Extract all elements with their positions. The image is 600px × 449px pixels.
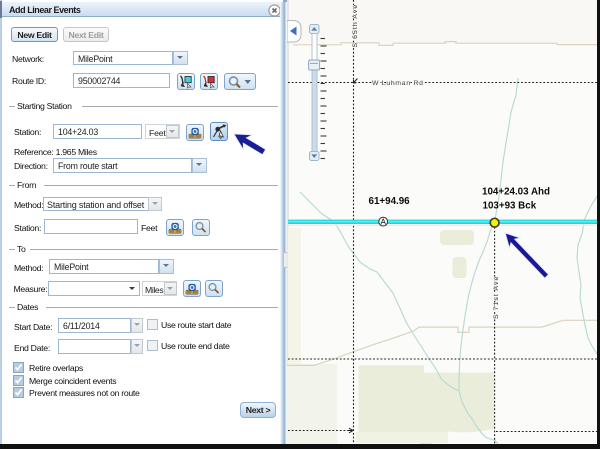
svg-text:W Luhman Rd: W Luhman Rd	[372, 80, 424, 87]
svg-text:S 65th Ave: S 65th Ave	[352, 4, 359, 48]
svg-text:61+94.96: 61+94.96	[369, 196, 411, 207]
svg-text:104+24.03 Ahd: 104+24.03 Ahd	[482, 187, 550, 198]
svg-text:S 71st Ave: S 71st Ave	[493, 276, 500, 319]
svg-text:103+93 Bck: 103+93 Bck	[483, 201, 537, 212]
